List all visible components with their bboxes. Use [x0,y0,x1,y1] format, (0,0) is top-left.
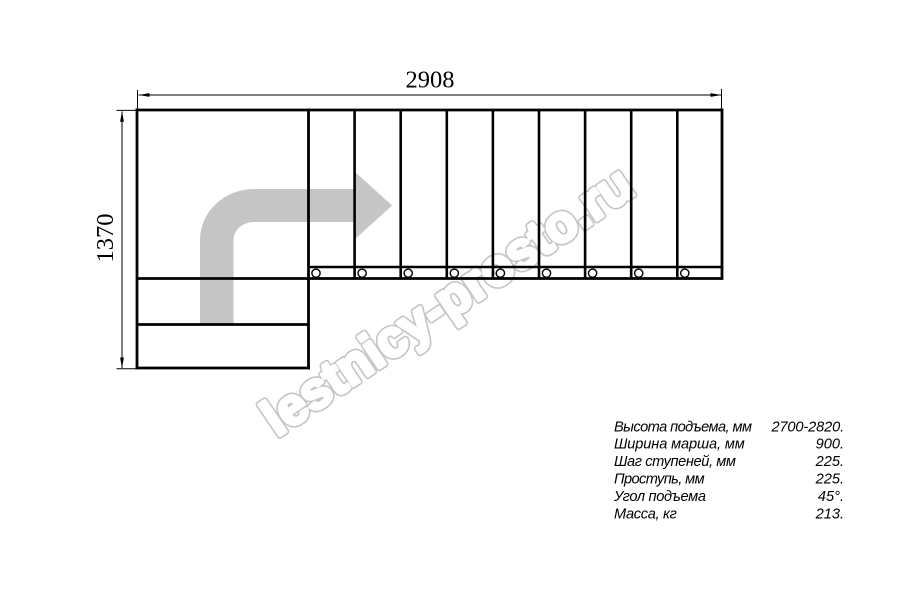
svg-text:Угол подъема: Угол подъема [613,489,706,505]
svg-text:Высота подъема, мм: Высота подъема, мм [614,419,752,435]
svg-text:213.: 213. [815,506,844,522]
svg-text:225.: 225. [815,472,844,488]
svg-text:2700-2820.: 2700-2820. [770,419,844,435]
svg-text:Шаг ступеней, мм: Шаг ступеней, мм [614,454,736,470]
svg-text:900.: 900. [816,437,844,453]
svg-text:Ширина марша, мм: Ширина марша, мм [614,437,745,453]
svg-text:1370: 1370 [92,214,119,263]
svg-text:2908: 2908 [406,67,455,94]
svg-text:Проступь, мм: Проступь, мм [614,472,705,488]
svg-text:225.: 225. [815,454,844,470]
svg-text:Масса, кг: Масса, кг [614,506,677,522]
svg-text:45°.: 45°. [818,489,844,505]
